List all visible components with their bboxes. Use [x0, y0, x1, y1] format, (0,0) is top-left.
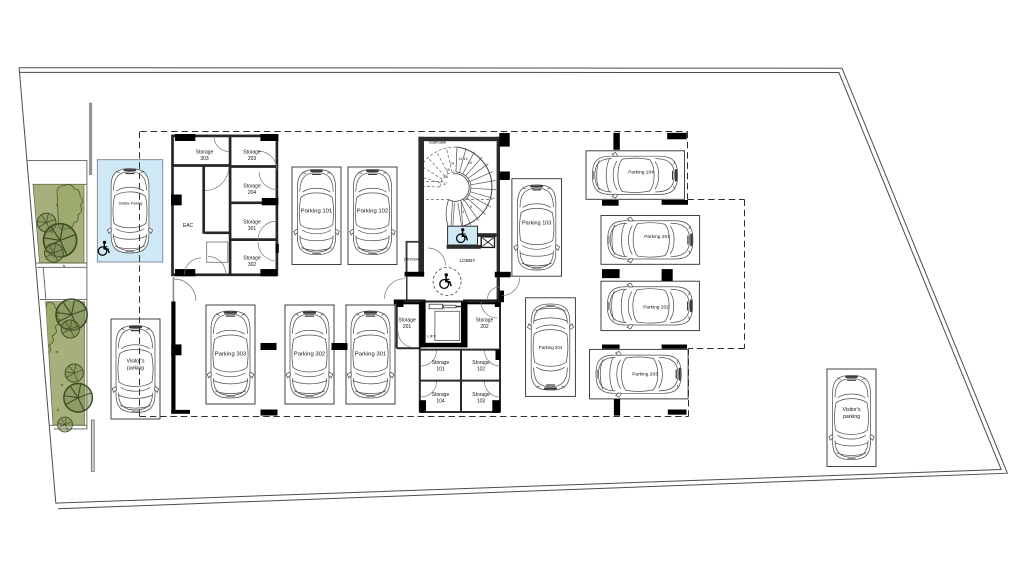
svg-text:Storage: Storage	[243, 220, 261, 226]
svg-text:Staircase: Staircase	[429, 140, 447, 145]
svg-text:Storage: Storage	[432, 360, 450, 366]
svg-text:203: 203	[248, 156, 257, 162]
svg-text:103: 103	[477, 399, 486, 405]
svg-text:201: 201	[403, 324, 412, 330]
svg-text:Visitor's: Visitor's	[127, 359, 145, 365]
svg-text:LOBBY: LOBBY	[460, 258, 477, 264]
svg-text:17: 17	[443, 182, 447, 186]
svg-text:104: 104	[436, 399, 445, 405]
svg-text:Parking 301: Parking 301	[355, 352, 386, 358]
svg-text:Storage: Storage	[472, 392, 490, 398]
svg-text:Parking 302: Parking 302	[294, 352, 325, 358]
svg-text:16: 16	[444, 175, 448, 179]
svg-text:Parking 201: Parking 201	[644, 234, 670, 240]
svg-text:Visitor's: Visitor's	[843, 407, 861, 413]
svg-text:Disable Parking: Disable Parking	[119, 202, 143, 206]
svg-text:Parking 103: Parking 103	[522, 221, 551, 227]
svg-text:Parking 102: Parking 102	[357, 209, 388, 215]
svg-text:Parking 204: Parking 204	[539, 345, 563, 350]
svg-text:204: 204	[248, 190, 257, 196]
svg-text:Storage: Storage	[196, 150, 214, 156]
svg-text:202: 202	[480, 324, 489, 330]
svg-text:15: 15	[446, 168, 450, 172]
svg-text:DRIVER: DRIVER	[404, 256, 419, 261]
svg-text:Storage: Storage	[243, 150, 261, 156]
svg-text:parking: parking	[843, 414, 860, 420]
svg-text:Storage: Storage	[476, 318, 494, 324]
svg-text:5: 5	[470, 205, 472, 209]
svg-text:3: 3	[462, 210, 464, 214]
svg-text:EAC: EAC	[183, 223, 194, 229]
svg-text:301: 301	[248, 226, 257, 232]
svg-text:Parking 203: Parking 203	[632, 372, 658, 378]
svg-text:303: 303	[200, 156, 209, 162]
svg-text:parking: parking	[127, 366, 144, 372]
svg-text:101: 101	[436, 367, 445, 373]
svg-text:302: 302	[248, 262, 257, 268]
svg-text:Storage: Storage	[398, 318, 416, 324]
svg-text:Parking 104: Parking 104	[628, 170, 654, 176]
svg-text:Parking 101: Parking 101	[301, 209, 332, 215]
svg-text:14: 14	[450, 162, 454, 166]
svg-text:102: 102	[477, 367, 486, 373]
svg-text:10: 10	[468, 161, 472, 165]
svg-text:Storage: Storage	[432, 392, 450, 398]
svg-text:Storage: Storage	[243, 184, 261, 190]
svg-text:Storage: Storage	[243, 256, 261, 262]
svg-text:12 13: 12 13	[459, 157, 468, 161]
svg-text:Parking 303: Parking 303	[215, 352, 247, 358]
svg-text:Parking 202: Parking 202	[643, 304, 669, 310]
svg-text:Storage: Storage	[472, 360, 490, 366]
svg-text:LIFT: LIFT	[427, 334, 436, 339]
